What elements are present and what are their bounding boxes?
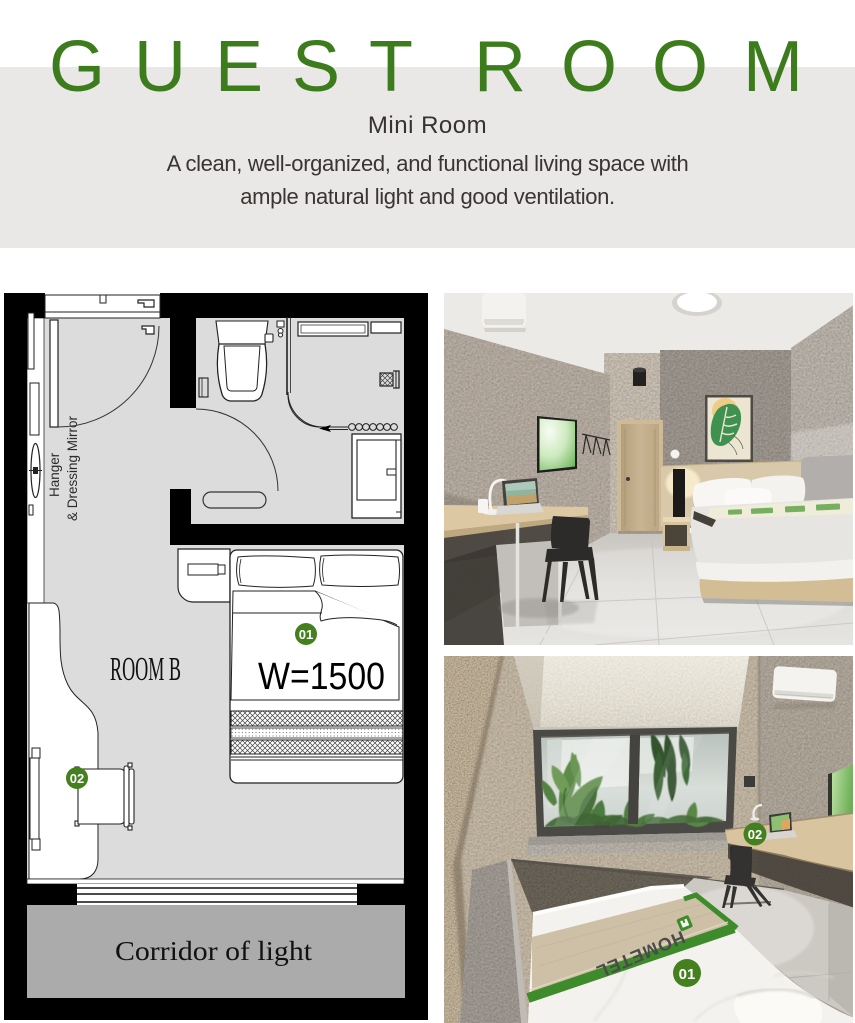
svg-text:01: 01	[299, 627, 313, 642]
svg-text:Corridor of light: Corridor of light	[115, 936, 313, 966]
svg-text:Hanger: Hanger	[47, 452, 62, 497]
svg-text:01: 01	[679, 966, 696, 983]
svg-text:ROOM B: ROOM B	[110, 651, 181, 688]
svg-text:02: 02	[70, 771, 84, 786]
svg-text:W=1500: W=1500	[258, 656, 385, 698]
svg-text:& Dressing Mirror: & Dressing Mirror	[65, 415, 80, 521]
svg-text:02: 02	[748, 827, 762, 842]
